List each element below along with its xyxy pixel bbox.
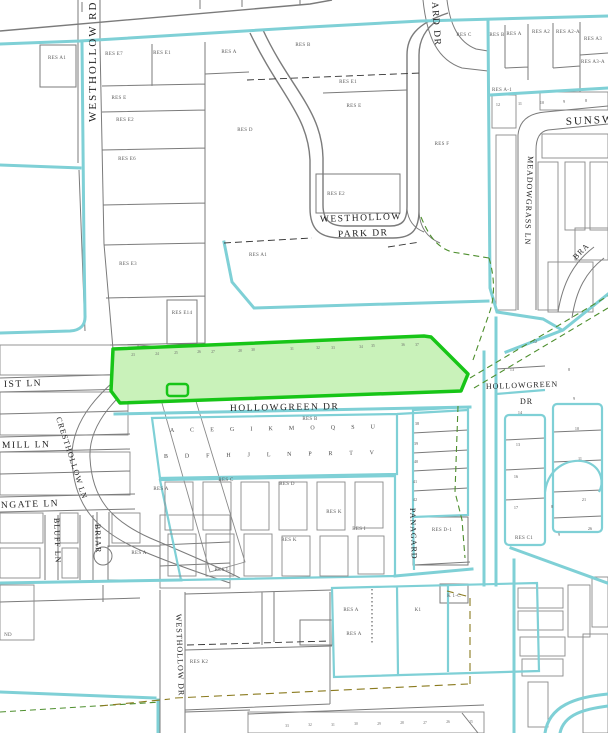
parcel-label: RES K2 (190, 660, 209, 665)
parcel-label: RES B (489, 33, 505, 38)
lot-number: 8 (551, 504, 553, 509)
lot-number: 25 (469, 720, 473, 724)
parcel-label: ND (4, 633, 12, 638)
parcel-label: RES E14 (172, 311, 193, 316)
map-canvas[interactable]: 23 24 25 26 27 28 30 31 32 33 34 35 36 3… (0, 0, 608, 733)
lot-number: 11 (518, 101, 522, 106)
parcel-label: RES C (456, 33, 472, 38)
parcel-label: RES A3-A (581, 60, 605, 65)
lot-number: 31 (290, 347, 294, 351)
lot-number: 39 (414, 441, 418, 446)
parcel-label: RES B (295, 43, 311, 48)
lot-number: 26 (197, 350, 201, 354)
parcel-label: RES A2 (532, 30, 550, 35)
lot-number: 9 (558, 532, 560, 537)
parcel-label: RES A2-A (556, 30, 580, 35)
lot-number: 21 (582, 497, 586, 502)
lot-number: 31 (331, 723, 335, 727)
parcel-label: RES E7 (105, 52, 123, 57)
lot-number: 27 (211, 350, 215, 354)
parcel-label: RES E (347, 104, 362, 109)
street-label-westhollow-park-dr-2: PARK DR (338, 228, 389, 240)
lot-number: 32 (316, 346, 320, 350)
street-label-ist-ln: IST LN (4, 379, 42, 390)
lot-number: 30 (251, 348, 255, 352)
parcel-label: RES A1 (249, 253, 267, 258)
street-label-sunswept: SUNSW (566, 113, 608, 128)
parcel-label: RES A (506, 32, 521, 37)
street-label-hollowgreen-dr-right-2: DR (520, 397, 533, 406)
street-label-westhollow-rd: WESTHOLLOW RD (87, 1, 99, 122)
parcel-label: RES E (112, 96, 127, 101)
lot-number: 25 (174, 351, 178, 355)
lot-number: 28 (400, 721, 404, 725)
street-label-hollowgreen-dr: HOLLOWGREEN DR (230, 402, 340, 414)
lot-number: 8 (568, 367, 570, 372)
highlighted-sub-parcel[interactable] (167, 384, 188, 396)
lot-number: 10 (540, 100, 544, 105)
street-label-bluff-ln: BLUFF LN (52, 518, 63, 564)
parcel-label: RES E2 (116, 118, 134, 123)
lot-number: 11 (578, 456, 582, 461)
lot-number: 42 (413, 497, 417, 502)
map-viewport[interactable]: 23 24 25 26 27 28 30 31 32 33 34 35 36 3… (0, 0, 608, 733)
lot-number: 32 (308, 723, 312, 727)
parcel-label: K1 (415, 608, 422, 613)
street-label-mill-ln: MILL LN (2, 440, 51, 451)
lot-number: 30 (354, 722, 358, 726)
lot-number: 26 (446, 720, 450, 724)
lot-number: 16 (514, 474, 518, 479)
parcel-label: RES E2 (327, 192, 345, 197)
street-label-ngate-ln: NGATE LN (1, 499, 60, 511)
parcel-label: RES A3 (584, 37, 602, 42)
lot-number: 13 (516, 442, 520, 447)
lot-number: 12 (533, 339, 537, 344)
parcel-label: RES K (281, 538, 297, 543)
parcel-label: RES B (302, 417, 318, 422)
lot-number: 23 (131, 353, 135, 357)
parcel-label: RES A1 (48, 56, 66, 61)
highlighted-parcel-group: 23 24 25 26 27 28 30 31 32 33 34 35 36 3… (111, 336, 468, 403)
lot-number: 8 (585, 98, 587, 103)
parcel-label: RES D (237, 128, 253, 133)
lot-number: 9 (573, 396, 575, 401)
lot-number: 26 (588, 526, 592, 531)
street-label-panagard: PANAGARD (408, 508, 419, 560)
parcel-label: RES A-1 (492, 88, 512, 93)
lot-number: 17 (514, 505, 518, 510)
parcel-label: RES D (279, 482, 295, 487)
lot-number: 34 (359, 345, 363, 349)
parcel-label: RES F (435, 142, 450, 147)
parcel-label: RES E3 (119, 262, 137, 267)
lot-number: 12 (496, 102, 500, 107)
lot-number: 13 (510, 367, 514, 372)
parcel-label: RES E1 (153, 51, 171, 56)
lot-number: 33 (285, 724, 289, 728)
parcel-label: RES L (215, 568, 230, 573)
parcel-label: RES K (326, 510, 342, 515)
lot-number: 33 (331, 346, 335, 350)
parcel-label: RES E1 (339, 80, 357, 85)
parcel-label: RES C1 (515, 536, 533, 541)
lot-number: 9 (563, 99, 565, 104)
parcel-label: K 1-C (447, 594, 461, 599)
lot-number: 41 (413, 479, 417, 484)
parcel-label: RES A (343, 608, 358, 613)
street-label-briar: BRIAR (93, 524, 103, 554)
lot-number: 28 (238, 349, 242, 353)
parcel-label: RES C (218, 478, 234, 483)
lot-number: 38 (415, 421, 419, 426)
parcel-label: RES A (131, 551, 146, 556)
parcel-label: RES A (346, 632, 361, 637)
parcel-label: RES A (221, 50, 236, 55)
lot-number: 29 (377, 722, 381, 726)
parcel-label: RES A (153, 487, 168, 492)
parcel-label: RES D-1 (432, 528, 452, 533)
parcel-label: RES E6 (118, 157, 136, 162)
parcel-label: RES I (352, 527, 366, 532)
lot-number: 35 (371, 344, 375, 348)
lot-number: 24 (155, 352, 159, 356)
lot-number: 27 (423, 721, 427, 725)
lot-number: 37 (415, 343, 419, 347)
lot-number: 10 (575, 426, 579, 431)
lot-number: 40 (414, 459, 418, 464)
lot-number: 36 (401, 343, 405, 347)
